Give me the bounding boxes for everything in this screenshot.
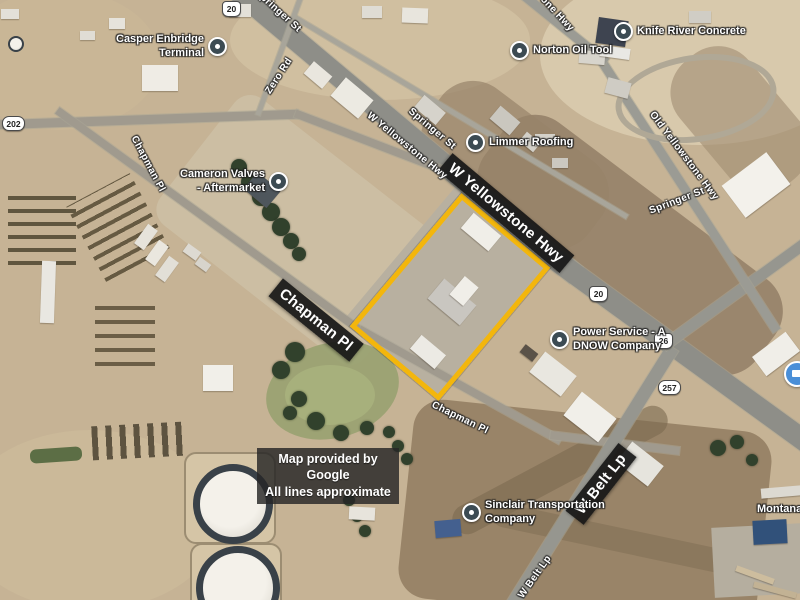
route-shield-202: 202 <box>2 116 25 131</box>
tree <box>283 406 297 420</box>
tree <box>383 426 395 438</box>
poi-label-line: Montana <box>757 503 800 517</box>
building-sinclair <box>434 519 461 538</box>
tree <box>746 454 758 466</box>
poi-casper-enbridge-terminal[interactable]: Casper Enbridge Terminal <box>116 33 227 61</box>
map-pin-icon[interactable] <box>466 133 485 152</box>
poi-sinclair-transportation[interactable]: Sinclair Transportation Company <box>462 499 605 527</box>
building <box>40 261 56 323</box>
tree <box>730 435 744 449</box>
map-pin-icon[interactable] <box>510 41 529 60</box>
building <box>402 8 429 24</box>
poi-label-line: Casper Enbridge <box>116 33 204 47</box>
poi-label: Norton Oil Tool <box>533 44 612 58</box>
attribution-line2: All lines approximate <box>257 484 399 500</box>
truck-row <box>761 485 800 498</box>
tree <box>401 453 413 465</box>
tree <box>333 425 349 441</box>
poi-label-line: DNOW Company <box>573 340 666 354</box>
small-tank <box>8 36 24 52</box>
route-shield-20: 20 <box>222 1 241 17</box>
tree <box>285 342 305 362</box>
tree <box>360 421 374 435</box>
poi-knife-river-concrete[interactable]: Knife River Concrete <box>614 22 746 41</box>
poi-label: Sinclair Transportation Company <box>485 499 605 527</box>
tree <box>272 361 290 379</box>
storage-yard-rows <box>91 422 185 461</box>
building <box>109 18 125 29</box>
building <box>552 158 568 168</box>
poi-montana-partial[interactable]: Montana <box>757 503 800 517</box>
route-shield-257: 257 <box>658 380 681 395</box>
map-pin-icon[interactable] <box>550 330 569 349</box>
map-attribution: Map provided by Google All lines approxi… <box>257 448 399 504</box>
poi-label: Montana <box>757 503 800 517</box>
route-shield-20: 20 <box>589 286 608 302</box>
attribution-line1: Map provided by Google <box>257 451 399 484</box>
poi-label: Power Service - A DNOW Company <box>573 326 666 354</box>
poi-label-line: Cameron Valves <box>180 168 265 182</box>
poi-label: Casper Enbridge Terminal <box>116 33 204 61</box>
building-montana <box>752 519 787 545</box>
map-pin-icon[interactable] <box>269 172 288 191</box>
building <box>520 344 539 362</box>
tree <box>359 525 371 537</box>
map-pin-icon[interactable] <box>208 37 227 56</box>
building <box>80 31 95 40</box>
poi-label: Cameron Valves - Aftermarket <box>180 168 265 196</box>
poi-label-line: Terminal <box>116 47 204 61</box>
poi-label-line: Norton Oil Tool <box>533 44 612 58</box>
poi-label-line: - Aftermarket <box>180 182 265 196</box>
building <box>349 506 376 520</box>
poi-cameron-valves[interactable]: Cameron Valves - Aftermarket <box>180 168 288 196</box>
building <box>362 6 382 18</box>
building <box>203 365 233 391</box>
terrain-sand <box>0 0 160 130</box>
poi-power-service-dnow[interactable]: Power Service - A DNOW Company <box>550 326 666 354</box>
poi-label-line: Knife River Concrete <box>637 25 746 39</box>
poi-label: Knife River Concrete <box>637 25 746 39</box>
storage-yard-rows <box>8 190 76 265</box>
map-pin-icon[interactable] <box>462 503 481 522</box>
poi-limmer-roofing[interactable]: Limmer Roofing <box>466 133 573 152</box>
poi-label-line: Power Service - A <box>573 326 666 340</box>
poi-label-line: Company <box>485 513 605 527</box>
map-pin-icon[interactable] <box>614 22 633 41</box>
poi-norton-oil-tool[interactable]: Norton Oil Tool <box>510 41 612 60</box>
storage-yard-rows <box>95 298 155 366</box>
tree <box>291 391 307 407</box>
poi-label-line: Limmer Roofing <box>489 136 573 150</box>
poi-label: Limmer Roofing <box>489 136 573 150</box>
tree <box>292 247 306 261</box>
tree <box>307 412 325 430</box>
building <box>1 9 19 19</box>
blue-poi-icon[interactable] <box>784 361 800 387</box>
poi-label-line: Sinclair Transportation <box>485 499 605 513</box>
building-terminal <box>142 65 178 91</box>
satellite-map: Springer St Zero Rd Springer St W Yellow… <box>0 0 800 600</box>
tree <box>710 440 726 456</box>
building-power-service <box>529 351 577 396</box>
